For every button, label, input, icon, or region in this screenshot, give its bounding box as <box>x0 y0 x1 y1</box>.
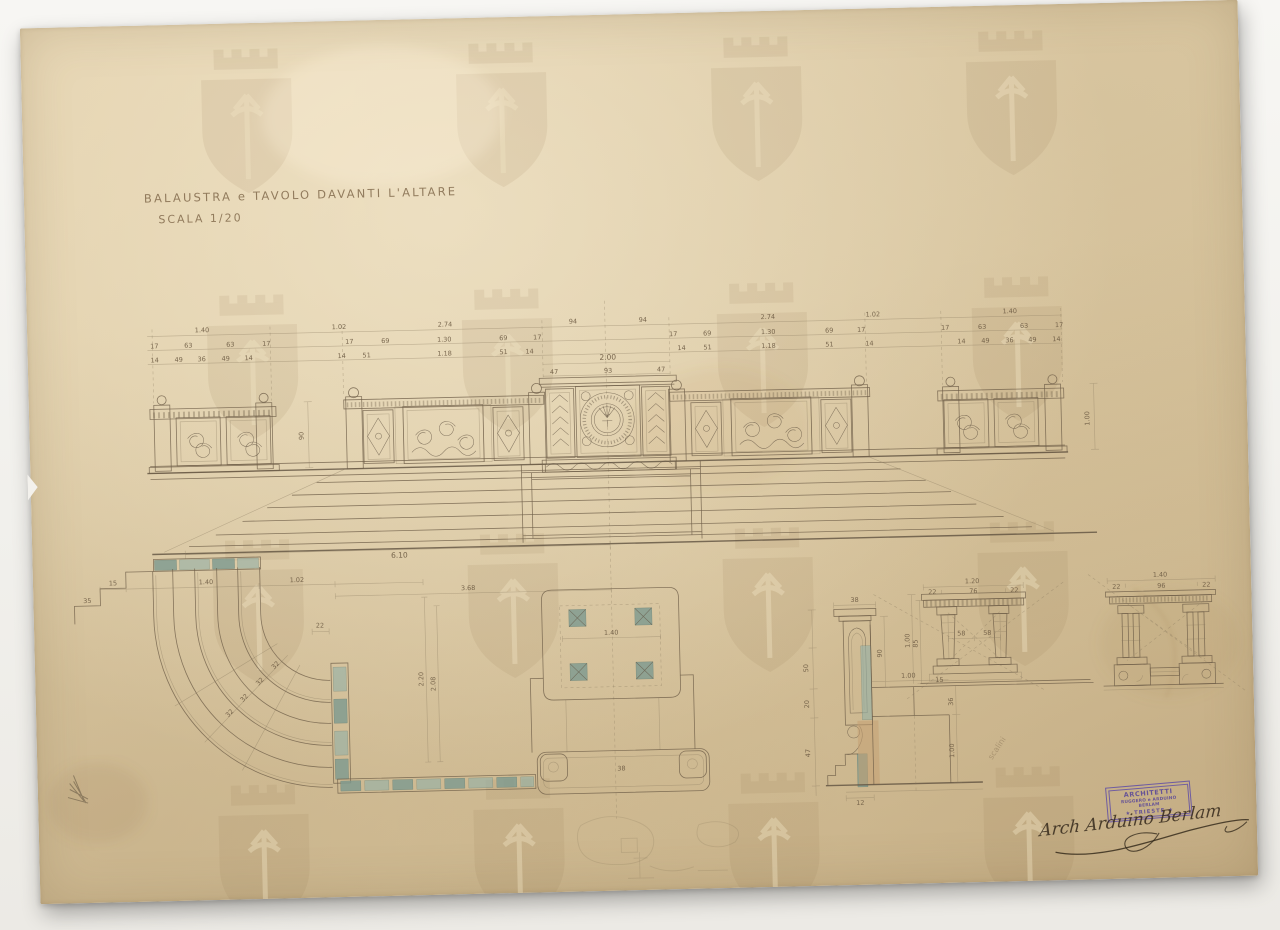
dim-label: 58 <box>957 629 965 637</box>
dim-label: 90 <box>876 649 884 657</box>
dim-label: 22 <box>316 621 324 629</box>
dim-label: 1.02 <box>332 323 347 331</box>
dim-label: 14 <box>150 356 158 364</box>
pencil-annotation: scalini <box>986 735 1007 761</box>
dim-label: 1.40 <box>199 578 214 586</box>
dim-label: 2.74 <box>438 320 453 328</box>
dim-label: 76 <box>969 587 977 595</box>
dim-label: 1.40 <box>1002 307 1017 315</box>
dim-label: 32 <box>224 708 236 720</box>
dim-label: 12 <box>856 799 864 807</box>
drawing-linework: 1.40 1.02 2.74 94 94 2.74 1.02 1.40 17 6… <box>20 0 1258 904</box>
dim-label: 14 <box>337 352 345 360</box>
dim-label: 51 <box>825 340 833 348</box>
dim-label: 51 <box>703 343 711 351</box>
dim-label: 17 <box>1055 321 1063 329</box>
photo-backdrop: 1.40 1.02 2.74 94 94 2.74 1.02 1.40 17 6… <box>0 0 1280 930</box>
dim-label: 22 <box>928 588 936 596</box>
dim-label: 47 <box>657 365 665 373</box>
dim-label: 96 <box>1157 582 1165 590</box>
dim-label: 1.00 <box>1083 411 1091 426</box>
dim-label: 1.18 <box>761 342 776 350</box>
dim-label: 17 <box>345 338 353 346</box>
dim-label: 69 <box>825 326 833 334</box>
dim-label: 85 <box>911 639 919 647</box>
dim-label: 3.68 <box>461 584 476 592</box>
dim-label: 1.18 <box>437 349 452 357</box>
dim-label: 63 <box>1020 322 1028 330</box>
dim-label: 1.00 <box>903 633 911 648</box>
dim-label: 1.20 <box>965 577 980 585</box>
dim-label: 14 <box>865 339 873 347</box>
dim-label: 14 <box>1052 335 1060 343</box>
dim-label: 2.00 <box>599 353 616 362</box>
dim-label: 2.08 <box>429 677 437 692</box>
dim-label: 50 <box>802 664 810 672</box>
dim-label: 17 <box>669 330 677 338</box>
dim-label: 90 <box>297 432 305 440</box>
dim-label: 14 <box>525 347 533 355</box>
dim-label: 94 <box>569 317 577 325</box>
dim-label: 1.30 <box>437 335 452 343</box>
dim-label: 17 <box>857 326 865 334</box>
dim-label: 47 <box>550 368 558 376</box>
pencil-sketch <box>577 814 740 880</box>
dim-label: 36 <box>947 697 955 705</box>
dim-label: 20 <box>803 700 811 708</box>
title-block: BALAUSTRA e TAVOLO DAVANTI L'ALTARE SCAL… <box>144 184 458 226</box>
dim-label: 1.40 <box>604 629 619 637</box>
dim-label: 93 <box>604 367 612 375</box>
plan-drawing <box>73 546 710 805</box>
dim-label: 69 <box>381 337 389 345</box>
dim-label: 58 <box>983 629 991 637</box>
dim-label: 1.00 <box>948 743 956 758</box>
dim-label: 63 <box>226 341 234 349</box>
dim-label: 6.10 <box>391 550 408 559</box>
dim-label: 69 <box>703 329 711 337</box>
dim-label: 47 <box>804 749 812 757</box>
dim-label: 69 <box>499 334 507 342</box>
dim-label: 2.74 <box>761 313 776 321</box>
dim-label: 49 <box>174 356 182 364</box>
dim-label: 36 <box>1005 336 1013 344</box>
dim-label: 15 <box>935 676 943 684</box>
dim-label: 63 <box>978 323 986 331</box>
dim-label: 1.02 <box>865 310 880 318</box>
dim-label: 94 <box>639 316 647 324</box>
dim-label: 22 <box>1010 586 1018 594</box>
dim-label: 17 <box>262 340 270 348</box>
dim-label: 1.30 <box>761 328 776 336</box>
dim-label: 51 <box>362 351 370 359</box>
dim-label: 1.02 <box>290 576 305 584</box>
dim-label: 22 <box>1202 581 1210 589</box>
dim-label: 32 <box>239 692 251 704</box>
dim-label: 17 <box>941 324 949 332</box>
table-front-dim-labels: 1.40 22 96 22 <box>1112 570 1211 591</box>
dim-label: 35 <box>83 597 91 605</box>
dim-label: 36 <box>197 355 205 363</box>
dim-label: 15 <box>109 579 117 587</box>
dim-label: 17 <box>150 342 158 350</box>
dim-label: 38 <box>850 596 858 604</box>
dim-label: 14 <box>677 344 685 352</box>
dim-label: 14 <box>244 354 252 362</box>
dim-label: 49 <box>1028 336 1036 344</box>
dim-label: 49 <box>221 355 229 363</box>
dim-label: 1.40 <box>195 326 210 334</box>
dim-label: 49 <box>981 337 989 345</box>
dim-label: 38 <box>617 764 625 772</box>
dim-label: 63 <box>184 341 192 349</box>
dim-label: 1.40 <box>1153 571 1168 579</box>
dim-label: 17 <box>533 333 541 341</box>
dim-label: 14 <box>957 337 965 345</box>
dim-label: 2.20 <box>417 672 425 687</box>
drawing-sheet: 1.40 1.02 2.74 94 94 2.74 1.02 1.40 17 6… <box>20 0 1258 904</box>
dim-label: 51 <box>499 348 507 356</box>
dim-label: 22 <box>1112 583 1120 591</box>
